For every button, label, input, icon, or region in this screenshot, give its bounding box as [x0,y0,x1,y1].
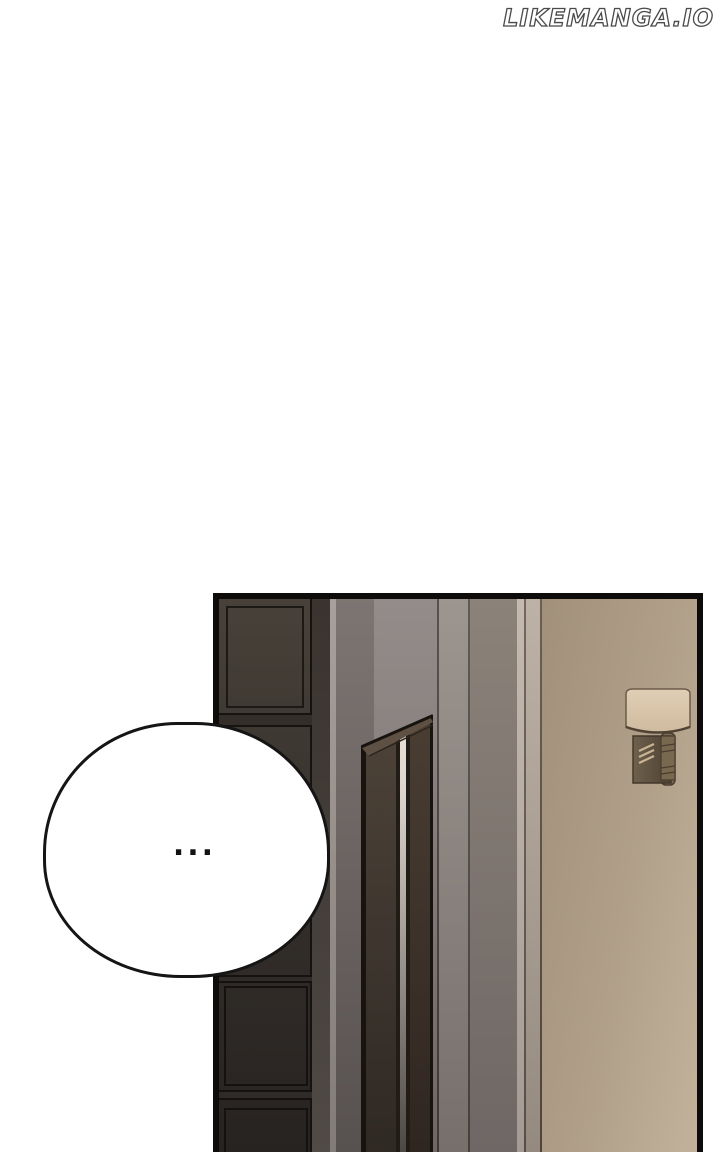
speech-bubble: ... [43,722,330,978]
cabinet-seam [219,975,312,983]
cabinet-door-panel [226,606,304,708]
cabinet-seam [219,1090,312,1100]
door-frame [361,712,433,1152]
comic-page: LIKEMANGA.IO [0,0,720,1152]
wall-strip [439,599,468,1152]
site-watermark: LIKEMANGA.IO [503,4,714,32]
wall-strip [470,599,517,1152]
cabinet-rail [219,713,312,727]
wall-strip-highlight [517,599,524,1152]
cabinet-drawer-panel [224,1108,308,1152]
wall-sconce [625,688,691,788]
beige-wall [542,599,697,1152]
cabinet-drawer-panel [224,986,308,1086]
wall-strip-highlight [526,599,540,1152]
sconce-shade [626,689,690,733]
